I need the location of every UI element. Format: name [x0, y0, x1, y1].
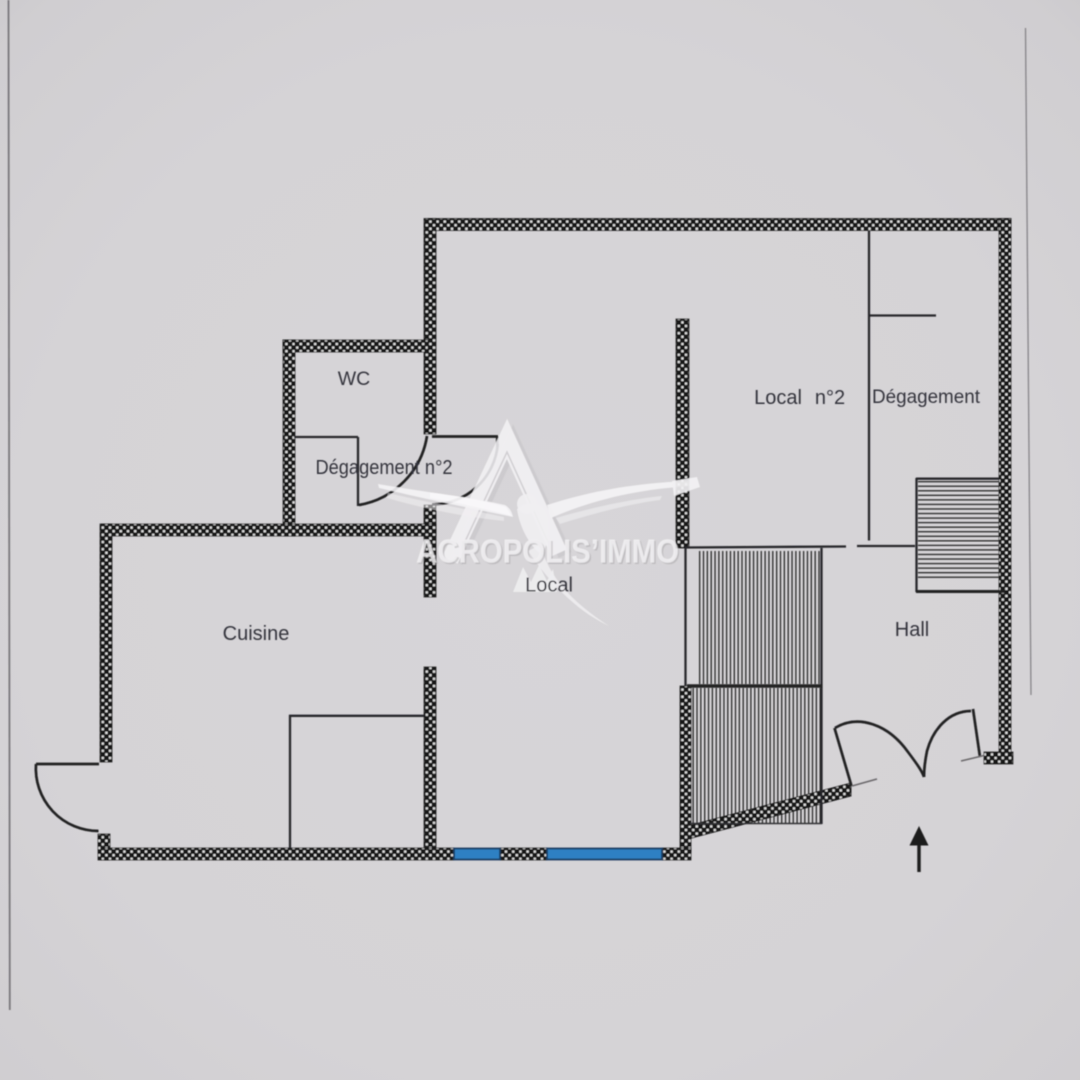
svg-text:WC: WC: [338, 368, 371, 390]
svg-text:Dégagement: Dégagement: [872, 386, 981, 408]
svg-text:ACROPOLIS’IMMO: ACROPOLIS’IMMO: [416, 533, 679, 570]
svg-text:n°2: n°2: [815, 387, 845, 409]
svg-text:Dégagement n°2: Dégagement n°2: [316, 457, 453, 479]
svg-text:Local: Local: [525, 575, 573, 597]
svg-text:Hall: Hall: [895, 619, 929, 641]
svg-text:Cuisine: Cuisine: [223, 623, 290, 645]
svg-text:Local: Local: [754, 387, 802, 409]
